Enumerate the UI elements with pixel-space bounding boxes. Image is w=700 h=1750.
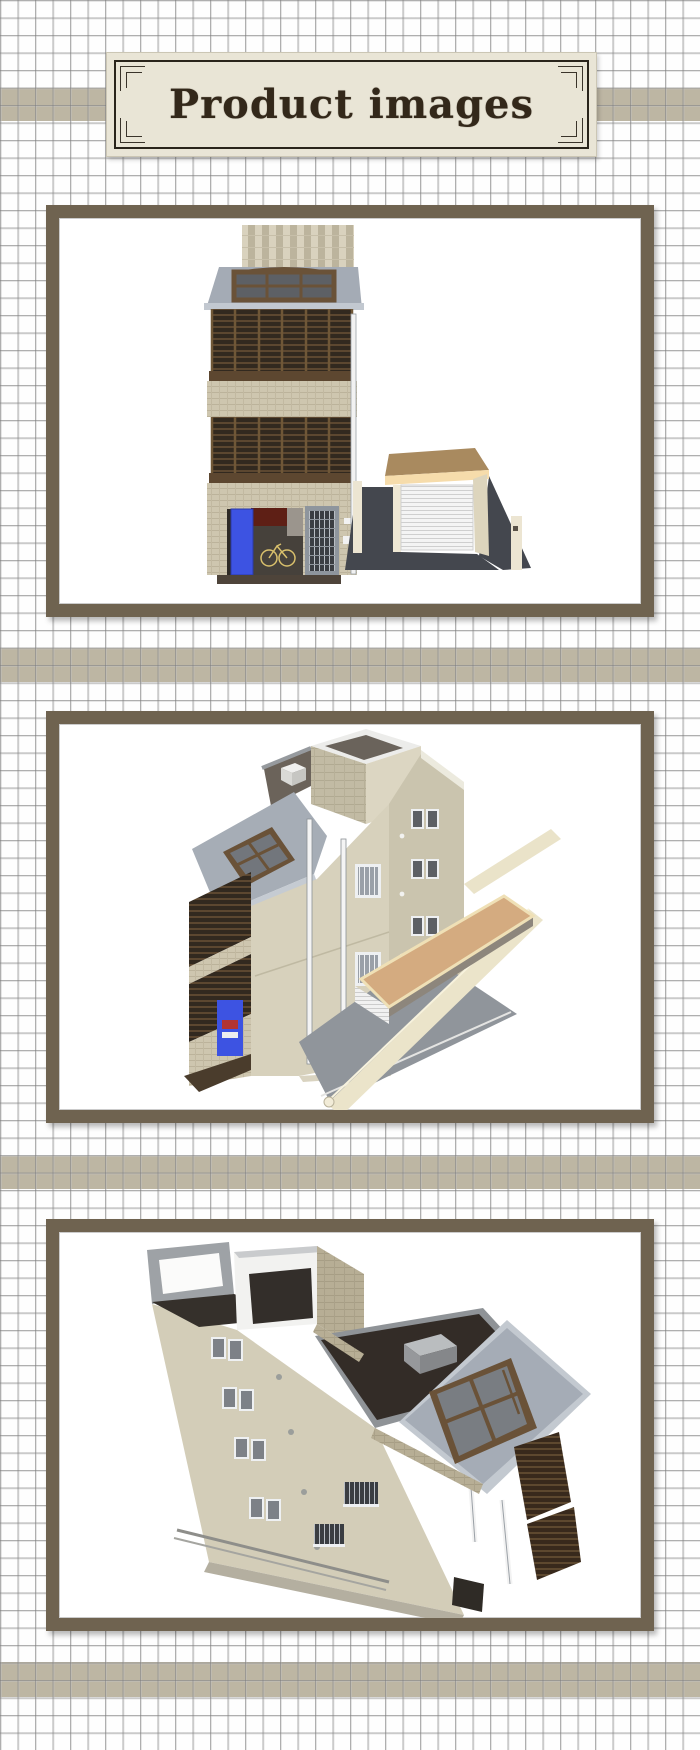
third-floor-louver-balcony: [209, 309, 355, 381]
ribbon-band-3: [0, 1156, 700, 1189]
blue-entry-door: [231, 509, 253, 575]
garage-shutter: [401, 485, 473, 550]
tile-band-upper: [207, 381, 357, 417]
image-mat-2: [59, 724, 641, 1110]
second-floor-louver-balcony: [209, 417, 355, 483]
corner-mark-inner-top-left: [126, 72, 142, 88]
building-aerial-rear-image: [59, 1232, 641, 1618]
ribbon-band-bottom: [0, 1662, 700, 1697]
page-title: Product images: [169, 81, 534, 128]
product-image-frame-1[interactable]: [46, 205, 654, 617]
title-inner-border: Product images: [114, 60, 589, 149]
product-image-frame-3[interactable]: [46, 1219, 654, 1631]
corner-mark-inner-bottom-right: [561, 121, 577, 137]
main-roof: [204, 267, 364, 310]
ground-floor: [207, 483, 357, 584]
page: { "header": { "title": "Product images" …: [0, 0, 700, 1750]
image-mat-1: [59, 218, 641, 604]
building-perspective-image: [59, 724, 641, 1110]
corner-mark-inner-bottom-left: [126, 121, 142, 137]
left-louver-stack: [184, 872, 251, 1092]
entry-step: [217, 575, 341, 584]
title-plaque: Product images: [106, 52, 597, 157]
product-image-frame-2[interactable]: [46, 711, 654, 1123]
corner-mark-inner-top-right: [561, 72, 577, 88]
ribbon-band-2: [0, 648, 700, 682]
building-front-elevation-image: [59, 218, 641, 604]
image-mat-3: [59, 1232, 641, 1618]
